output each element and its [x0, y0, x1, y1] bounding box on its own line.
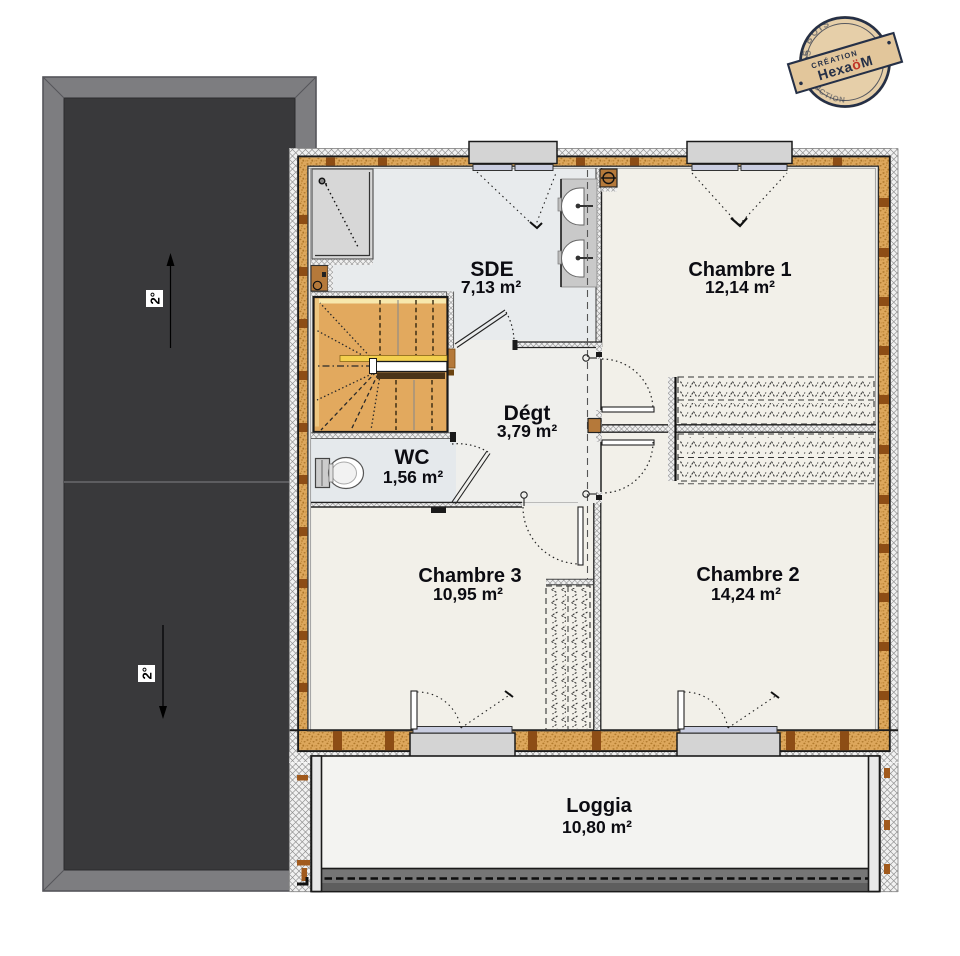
svg-text:Chambre 2: Chambre 2: [696, 564, 799, 586]
svg-text:12,14 m²: 12,14 m²: [705, 277, 775, 297]
svg-text:10,80 m²: 10,80 m²: [562, 817, 632, 837]
svg-text:Loggia: Loggia: [566, 795, 632, 817]
svg-text:10,95 m²: 10,95 m²: [433, 584, 503, 604]
svg-text:7,13 m²: 7,13 m²: [461, 277, 521, 297]
svg-text:14,24 m²: 14,24 m²: [711, 584, 781, 604]
svg-text:3,79 m²: 3,79 m²: [497, 421, 557, 441]
svg-text:WC: WC: [395, 446, 430, 469]
svg-text:2°: 2°: [148, 292, 163, 304]
svg-text:2°: 2°: [140, 667, 155, 679]
svg-text:1,56 m²: 1,56 m²: [383, 467, 443, 487]
